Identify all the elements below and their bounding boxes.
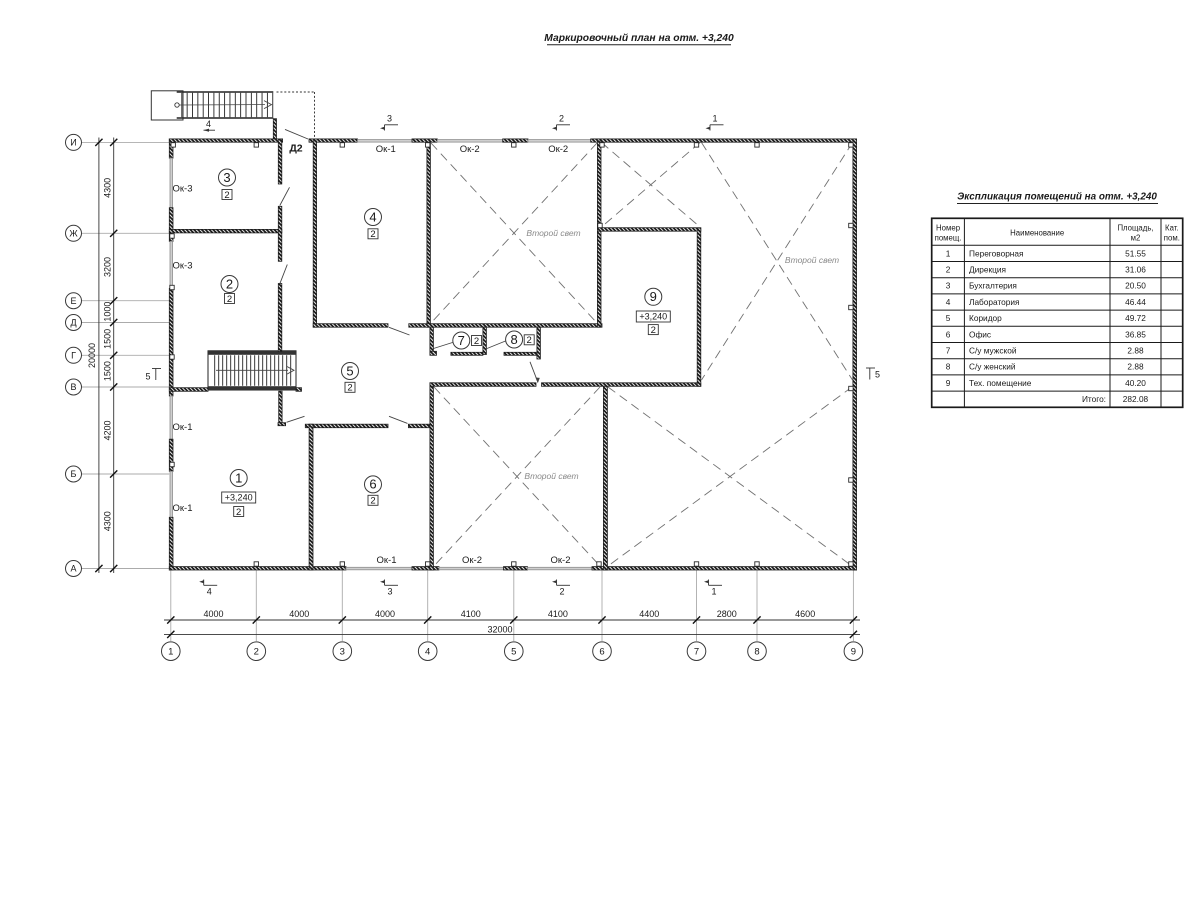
svg-text:1: 1 bbox=[946, 248, 951, 258]
svg-text:4: 4 bbox=[369, 209, 376, 224]
svg-text:4100: 4100 bbox=[548, 609, 568, 619]
svg-text:1: 1 bbox=[235, 470, 242, 485]
svg-text:4300: 4300 bbox=[103, 178, 113, 198]
svg-text:Ок-3: Ок-3 bbox=[173, 184, 193, 195]
svg-text:3: 3 bbox=[946, 281, 951, 291]
svg-text:Ок-2: Ок-2 bbox=[551, 555, 571, 566]
svg-text:9: 9 bbox=[851, 647, 856, 658]
svg-text:4: 4 bbox=[206, 119, 211, 129]
svg-text:2: 2 bbox=[559, 114, 564, 124]
svg-text:3: 3 bbox=[223, 170, 230, 185]
svg-text:4300: 4300 bbox=[103, 511, 113, 531]
svg-text:Ок-2: Ок-2 bbox=[548, 144, 568, 155]
svg-text:7: 7 bbox=[946, 346, 951, 356]
svg-text:А: А bbox=[70, 564, 76, 574]
svg-text:Дирекция: Дирекция bbox=[969, 265, 1006, 275]
svg-text:4100: 4100 bbox=[461, 609, 481, 619]
svg-text:2: 2 bbox=[370, 496, 375, 507]
svg-text:4000: 4000 bbox=[289, 609, 309, 619]
svg-text:49.72: 49.72 bbox=[1125, 313, 1146, 323]
svg-text:31.06: 31.06 bbox=[1125, 265, 1146, 275]
svg-text:4200: 4200 bbox=[103, 420, 113, 440]
svg-text:Лаборатория: Лаборатория bbox=[969, 297, 1020, 307]
svg-text:Второй свет: Второй свет bbox=[524, 471, 578, 481]
svg-text:7: 7 bbox=[458, 333, 465, 348]
svg-text:Бухгалтерия: Бухгалтерия bbox=[969, 281, 1017, 291]
svg-text:Кат.: Кат. bbox=[1165, 224, 1179, 233]
svg-text:2.88: 2.88 bbox=[1127, 362, 1144, 372]
svg-text:2: 2 bbox=[347, 383, 352, 394]
svg-text:Офис: Офис bbox=[969, 329, 991, 339]
svg-text:5: 5 bbox=[145, 372, 150, 382]
svg-text:2: 2 bbox=[651, 325, 656, 336]
svg-text:Ок-2: Ок-2 bbox=[462, 555, 482, 566]
svg-text:8: 8 bbox=[754, 647, 759, 658]
svg-text:2: 2 bbox=[227, 294, 232, 305]
svg-text:3200: 3200 bbox=[103, 257, 113, 277]
svg-text:Ж: Ж bbox=[69, 229, 78, 239]
svg-text:20.50: 20.50 bbox=[1125, 281, 1146, 291]
svg-text:1000: 1000 bbox=[103, 302, 113, 322]
svg-text:Итого:: Итого: bbox=[1082, 394, 1106, 404]
svg-text:2: 2 bbox=[370, 229, 375, 240]
svg-text:5: 5 bbox=[875, 370, 880, 380]
svg-text:4000: 4000 bbox=[204, 609, 224, 619]
svg-text:4: 4 bbox=[425, 647, 430, 658]
svg-text:помещ.: помещ. bbox=[935, 234, 962, 243]
svg-text:8: 8 bbox=[946, 362, 951, 372]
svg-text:м2: м2 bbox=[1131, 234, 1141, 243]
svg-text:Ок-1: Ок-1 bbox=[377, 555, 397, 566]
svg-text:С/у мужской: С/у мужской bbox=[969, 346, 1017, 356]
svg-text:пом.: пом. bbox=[1164, 234, 1180, 243]
svg-text:Г: Г bbox=[71, 351, 76, 361]
svg-text:Ок-2: Ок-2 bbox=[460, 144, 480, 155]
svg-text:1: 1 bbox=[711, 587, 716, 597]
svg-text:1: 1 bbox=[712, 114, 717, 124]
svg-text:Е: Е bbox=[70, 296, 76, 306]
svg-text:Второй свет: Второй свет bbox=[526, 228, 580, 238]
svg-text:Второй свет: Второй свет bbox=[785, 255, 839, 265]
svg-text:40.20: 40.20 bbox=[1125, 378, 1146, 388]
svg-text:+3,240: +3,240 bbox=[225, 493, 253, 503]
svg-text:9: 9 bbox=[650, 289, 657, 304]
svg-text:8: 8 bbox=[510, 332, 517, 347]
svg-text:3: 3 bbox=[340, 647, 345, 658]
svg-text:Наименование: Наименование bbox=[1010, 229, 1064, 238]
svg-text:И: И bbox=[70, 138, 76, 148]
svg-text:Б: Б bbox=[71, 469, 77, 479]
svg-text:6: 6 bbox=[946, 329, 951, 339]
svg-text:6: 6 bbox=[369, 477, 376, 492]
svg-text:2: 2 bbox=[474, 336, 479, 347]
svg-text:2: 2 bbox=[236, 507, 241, 518]
svg-text:В: В bbox=[70, 382, 76, 392]
svg-text:3: 3 bbox=[387, 114, 392, 124]
svg-text:Ок-3: Ок-3 bbox=[173, 261, 193, 272]
svg-text:Номер: Номер bbox=[936, 224, 961, 233]
svg-text:Экспликация помещений на отм.: Экспликация помещений на отм. +3,240 bbox=[957, 192, 1157, 203]
svg-text:6: 6 bbox=[599, 647, 604, 658]
svg-text:2: 2 bbox=[559, 587, 564, 597]
svg-text:32000: 32000 bbox=[487, 624, 512, 634]
svg-text:5: 5 bbox=[346, 363, 353, 378]
svg-text:2: 2 bbox=[527, 335, 532, 346]
svg-text:5: 5 bbox=[946, 313, 951, 323]
svg-text:1: 1 bbox=[168, 647, 173, 658]
svg-text:20000: 20000 bbox=[87, 343, 97, 368]
svg-text:Д: Д bbox=[70, 318, 76, 328]
svg-text:3: 3 bbox=[387, 587, 392, 597]
svg-text:46.44: 46.44 bbox=[1125, 297, 1146, 307]
svg-text:Тех. помещение: Тех. помещение bbox=[969, 378, 1032, 388]
svg-text:Переговорная: Переговорная bbox=[969, 248, 1024, 258]
svg-text:2.88: 2.88 bbox=[1127, 346, 1144, 356]
svg-text:Коридор: Коридор bbox=[969, 313, 1002, 323]
svg-text:+3,240: +3,240 bbox=[639, 312, 667, 322]
svg-text:1500: 1500 bbox=[103, 329, 113, 349]
svg-text:Ок-1: Ок-1 bbox=[376, 144, 396, 155]
svg-text:2: 2 bbox=[254, 647, 259, 658]
svg-text:5: 5 bbox=[511, 647, 516, 658]
svg-text:Д2: Д2 bbox=[289, 143, 302, 155]
svg-text:Ок-1: Ок-1 bbox=[173, 503, 193, 514]
svg-text:36.85: 36.85 bbox=[1125, 329, 1146, 339]
svg-text:2800: 2800 bbox=[717, 609, 737, 619]
svg-text:7: 7 bbox=[694, 647, 699, 658]
svg-text:4: 4 bbox=[946, 297, 951, 307]
svg-text:9: 9 bbox=[946, 378, 951, 388]
svg-text:2: 2 bbox=[226, 276, 233, 291]
svg-text:4: 4 bbox=[207, 587, 212, 597]
svg-text:2: 2 bbox=[224, 190, 229, 201]
svg-text:4000: 4000 bbox=[375, 609, 395, 619]
svg-text:Ок-1: Ок-1 bbox=[173, 422, 193, 433]
svg-text:Площадь,: Площадь, bbox=[1117, 224, 1153, 233]
svg-text:Маркировочный план на отм. +3,: Маркировочный план на отм. +3,240 bbox=[544, 33, 734, 44]
svg-text:1500: 1500 bbox=[103, 361, 113, 381]
svg-text:282.08: 282.08 bbox=[1123, 394, 1149, 404]
svg-text:С/у женский: С/у женский bbox=[969, 362, 1016, 372]
svg-text:51.55: 51.55 bbox=[1125, 248, 1146, 258]
svg-text:2: 2 bbox=[946, 265, 951, 275]
svg-text:4600: 4600 bbox=[795, 609, 815, 619]
svg-text:4400: 4400 bbox=[639, 609, 659, 619]
